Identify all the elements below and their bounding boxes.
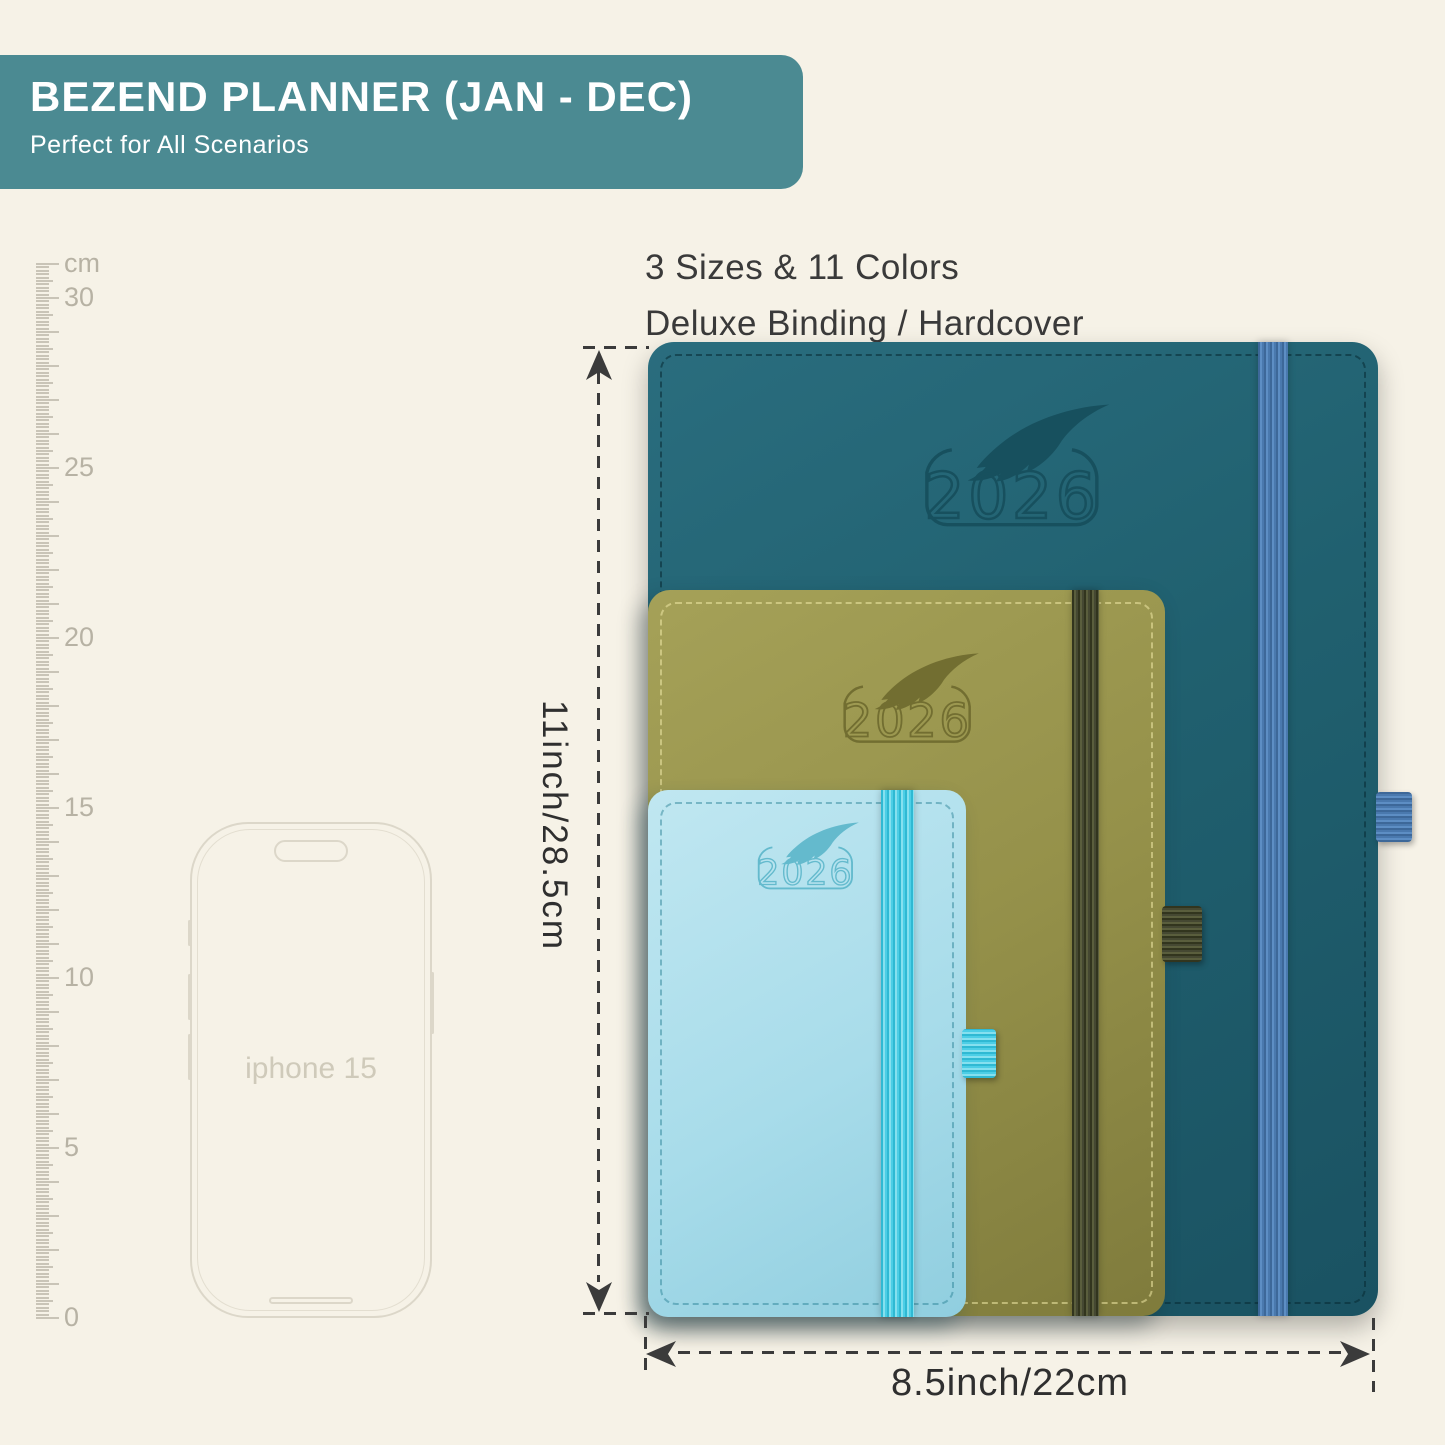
ruler-tick	[36, 664, 49, 666]
pen-loop	[962, 1029, 996, 1078]
ruler-tick	[36, 1093, 49, 1095]
ruler-tick	[36, 715, 49, 717]
ruler-tick	[36, 1246, 49, 1248]
ruler-tick	[36, 892, 53, 894]
ruler-tick	[36, 277, 49, 279]
ruler-tick	[36, 766, 49, 768]
year-text: 2026	[843, 695, 972, 749]
ruler-tick	[36, 742, 49, 744]
ruler-tick	[36, 617, 49, 619]
ruler-tick	[36, 895, 49, 897]
ruler-tick	[36, 807, 59, 809]
ruler-tick	[36, 413, 49, 415]
ruler-tick	[36, 719, 49, 721]
ruler-tick	[36, 1120, 49, 1122]
ruler-tick	[36, 991, 49, 993]
ruler-tick	[36, 351, 49, 353]
ruler-tick	[36, 1127, 49, 1129]
dimension-right-tick	[1372, 1318, 1375, 1392]
ruler-tick	[36, 504, 49, 506]
ruler-tick	[36, 1137, 49, 1139]
ruler-tick	[36, 970, 49, 972]
ruler-tick	[36, 729, 49, 731]
ruler-tick	[36, 657, 49, 659]
product-image: BEZEND PLANNER (JAN - DEC) Perfect for A…	[0, 0, 1445, 1445]
ruler-tick	[36, 324, 49, 326]
ruler-tick	[36, 545, 49, 547]
ruler-tick	[36, 593, 49, 595]
arrow-left-icon	[648, 1339, 674, 1369]
ruler-tick	[36, 1055, 49, 1057]
ruler-tick	[36, 851, 49, 853]
banner-title: BEZEND PLANNER (JAN - DEC)	[30, 73, 803, 121]
ruler-tick	[36, 334, 49, 336]
ruler-tick	[36, 273, 49, 275]
ruler-tick	[36, 399, 59, 401]
ruler-tick	[36, 637, 59, 639]
ruler-tick	[36, 1252, 49, 1254]
mute-switch	[188, 920, 191, 946]
ruler-tick	[36, 722, 53, 724]
ruler-tick	[36, 1239, 49, 1241]
ruler-tick	[36, 430, 49, 432]
ruler-tick	[36, 654, 53, 656]
ruler-tick	[36, 1232, 53, 1234]
ruler-tick	[36, 583, 49, 585]
ruler-tick	[36, 739, 59, 741]
height-dimension-label: 11inch/28.5cm	[534, 700, 574, 951]
year-emblem: 2026	[750, 820, 862, 897]
ruler-tick	[36, 929, 49, 931]
ruler-tick	[36, 821, 49, 823]
cm-ruler: 302520151050cm	[0, 0, 140, 1445]
banner-subtitle: Perfect for All Scenarios	[30, 131, 803, 160]
ruler-tick	[36, 885, 49, 887]
ruler-tick	[36, 494, 49, 496]
ruler-label: 20	[64, 622, 94, 653]
ruler-tick	[36, 1110, 49, 1112]
ruler-tick	[36, 681, 49, 683]
ruler-tick	[36, 1229, 49, 1231]
ruler-tick	[36, 1144, 49, 1146]
iphone-label: iphone 15	[192, 1052, 430, 1086]
ruler-tick	[36, 1045, 59, 1047]
ruler-tick	[36, 419, 49, 421]
ruler-tick	[36, 1198, 53, 1200]
ruler-tick	[36, 875, 59, 877]
ruler-tick	[36, 1300, 53, 1302]
ruler-tick	[36, 841, 59, 843]
volume-down-button	[188, 1034, 191, 1080]
ruler-tick	[36, 477, 49, 479]
ruler-tick	[36, 994, 53, 996]
ruler-tick	[36, 1059, 49, 1061]
ruler-tick	[36, 379, 49, 381]
feature-text: 3 Sizes & 11 Colors Deluxe Binding / Har…	[645, 240, 1084, 352]
ruler-tick	[36, 453, 49, 455]
ruler-tick	[36, 1290, 49, 1292]
dimension-top-cap	[583, 346, 649, 349]
ruler-tick	[36, 695, 49, 697]
ruler-tick	[36, 1004, 49, 1006]
ruler-tick	[36, 443, 49, 445]
ruler-tick	[36, 1171, 49, 1173]
dynamic-island	[274, 840, 348, 862]
ruler-tick	[36, 688, 53, 690]
ruler-tick	[36, 1184, 49, 1186]
ruler-tick	[36, 1222, 49, 1224]
ruler-tick	[36, 263, 59, 265]
ruler-tick	[36, 810, 49, 812]
ruler-tick	[36, 1174, 49, 1176]
ruler-tick	[36, 698, 49, 700]
ruler-tick	[36, 906, 49, 908]
ruler-tick	[36, 627, 49, 629]
ruler-tick	[36, 997, 49, 999]
ruler-tick	[36, 603, 59, 605]
ruler-tick	[36, 589, 49, 591]
ruler-tick	[36, 528, 49, 530]
ruler-tick	[36, 450, 53, 452]
ruler-tick	[36, 984, 49, 986]
ruler-tick	[36, 1280, 49, 1282]
ruler-tick	[36, 899, 49, 901]
ruler-tick	[36, 770, 49, 772]
ruler-tick	[36, 882, 49, 884]
ruler-tick	[36, 1106, 49, 1108]
ruler-tick	[36, 481, 49, 483]
ruler-tick	[36, 651, 49, 653]
ruler-tick	[36, 1072, 49, 1074]
ruler-tick	[36, 916, 49, 918]
ruler-tick	[36, 974, 49, 976]
ruler-tick	[36, 790, 53, 792]
ruler-tick	[36, 1310, 49, 1312]
ruler-tick	[36, 266, 49, 268]
ruler-tick	[36, 936, 49, 938]
ruler-tick	[36, 861, 49, 863]
ruler-tick	[36, 515, 49, 517]
ruler-tick	[36, 804, 49, 806]
ruler-tick	[36, 328, 49, 330]
ruler-tick	[36, 668, 49, 670]
ruler-tick	[36, 1164, 53, 1166]
ruler-tick	[36, 1048, 49, 1050]
ruler-tick	[36, 630, 49, 632]
ruler-tick	[36, 1018, 49, 1020]
ruler-tick	[36, 1297, 49, 1299]
ruler-tick	[36, 358, 49, 360]
ruler-tick	[36, 865, 49, 867]
ruler-tick	[36, 678, 49, 680]
ruler-tick	[36, 953, 49, 955]
ruler-tick	[36, 368, 49, 370]
pen-loop	[1376, 792, 1412, 842]
ruler-tick	[36, 382, 53, 384]
ruler-tick	[36, 878, 49, 880]
arrow-down-icon	[586, 1282, 612, 1312]
ruler-tick	[36, 1212, 49, 1214]
ruler-tick	[36, 460, 49, 462]
ruler-tick	[36, 1113, 59, 1115]
ruler-tick	[36, 705, 59, 707]
year-text: 2026	[757, 854, 853, 894]
ruler-tick	[36, 416, 53, 418]
ruler-tick	[36, 549, 49, 551]
elastic-band	[1258, 342, 1288, 1316]
ruler-tick	[36, 685, 49, 687]
ruler-tick	[36, 1266, 53, 1268]
ruler-tick	[36, 753, 49, 755]
ruler-tick	[36, 919, 49, 921]
ruler-tick	[36, 484, 53, 486]
ruler-tick	[36, 797, 49, 799]
ruler-tick	[36, 532, 49, 534]
ruler-tick	[36, 562, 49, 564]
ruler-tick	[36, 283, 49, 285]
ruler-tick	[36, 855, 49, 857]
ruler-tick	[36, 521, 49, 523]
ruler-tick	[36, 433, 59, 435]
ruler-tick	[36, 1181, 59, 1183]
ruler-tick	[36, 824, 53, 826]
ruler-tick	[36, 834, 49, 836]
ruler-tick	[36, 1218, 49, 1220]
ruler-tick	[36, 511, 49, 513]
ruler-tick	[36, 409, 49, 411]
ruler-tick	[36, 1065, 49, 1067]
ruler-tick	[36, 756, 53, 758]
ruler-tick	[36, 773, 59, 775]
ruler-tick	[36, 1191, 49, 1193]
arrow-right-icon	[1342, 1339, 1368, 1369]
ruler-tick	[36, 572, 49, 574]
ruler-tick	[36, 1263, 49, 1265]
ruler-tick	[36, 889, 49, 891]
ruler-tick	[36, 844, 49, 846]
ruler-tick	[36, 1147, 59, 1149]
ruler-tick	[36, 348, 53, 350]
ruler-tick	[36, 362, 49, 364]
ruler-tick	[36, 375, 49, 377]
ruler-tick	[36, 702, 49, 704]
ruler-tick	[36, 294, 49, 296]
ruler-tick	[36, 776, 49, 778]
ruler-tick	[36, 392, 49, 394]
planner-small: 2026	[648, 790, 966, 1317]
ruler-tick	[36, 270, 49, 272]
ruler-tick	[36, 1178, 49, 1180]
ruler-tick	[36, 1283, 59, 1285]
ruler-tick	[36, 518, 53, 520]
ruler-tick	[36, 338, 49, 340]
ruler-tick	[36, 1069, 49, 1071]
ruler-tick	[36, 1011, 59, 1013]
ruler-tick	[36, 290, 49, 292]
ruler-tick	[36, 960, 53, 962]
ruler-tick	[36, 872, 49, 874]
ruler-tick	[36, 1140, 49, 1142]
ruler-tick	[36, 1035, 49, 1037]
ruler-tick	[36, 1031, 49, 1033]
home-indicator	[269, 1297, 353, 1304]
ruler-tick	[36, 1130, 53, 1132]
ruler-tick	[36, 827, 49, 829]
ruler-label: 0	[64, 1302, 79, 1333]
ruler-tick	[36, 708, 49, 710]
ruler-tick	[36, 1079, 59, 1081]
ruler-tick	[36, 1157, 49, 1159]
ruler-tick	[36, 1038, 49, 1040]
ruler-tick	[36, 1314, 49, 1316]
ruler-tick	[36, 317, 49, 319]
ruler-label: 15	[64, 792, 94, 823]
ruler-tick	[36, 569, 59, 571]
ruler-tick	[36, 1008, 49, 1010]
ruler-tick	[36, 389, 49, 391]
ruler-tick	[36, 1215, 59, 1217]
ruler-label: 5	[64, 1132, 79, 1163]
ruler-tick	[36, 501, 59, 503]
ruler-tick	[36, 1025, 49, 1027]
pen-loop	[1162, 906, 1202, 962]
width-dimension-label: 8.5inch/22cm	[840, 1362, 1180, 1405]
ruler-tick	[36, 868, 49, 870]
ruler-tick	[36, 1001, 49, 1003]
ruler-tick	[36, 902, 49, 904]
ruler-tick	[36, 1188, 49, 1190]
ruler-tick	[36, 535, 59, 537]
ruler-tick	[36, 759, 49, 761]
ruler-tick	[36, 1133, 49, 1135]
ruler-tick	[36, 736, 49, 738]
ruler-tick	[36, 426, 49, 428]
ruler-tick	[36, 1293, 49, 1295]
ruler-tick	[36, 1303, 49, 1305]
ruler-tick	[36, 314, 53, 316]
ruler-tick	[36, 1256, 49, 1258]
ruler-tick	[36, 355, 49, 357]
ruler-tick	[36, 1201, 49, 1203]
iphone-outline: iphone 15	[190, 822, 432, 1318]
ruler-tick	[36, 525, 49, 527]
ruler-tick	[36, 946, 49, 948]
ruler-tick	[36, 280, 53, 282]
ruler-tick	[36, 498, 49, 500]
ruler-tick	[36, 1242, 49, 1244]
ruler-tick	[36, 644, 49, 646]
ruler-tick	[36, 848, 49, 850]
ruler-tick	[36, 586, 53, 588]
ruler-tick	[36, 321, 49, 323]
elastic-band	[881, 790, 914, 1317]
ruler-tick	[36, 980, 49, 982]
ruler-tick	[36, 467, 59, 469]
ruler-tick	[36, 596, 49, 598]
ruler-tick	[36, 838, 49, 840]
ruler-tick	[36, 933, 49, 935]
ruler-tick	[36, 1028, 53, 1030]
ruler-tick	[36, 1082, 49, 1084]
arrow-up-icon	[586, 350, 612, 380]
ruler-tick	[36, 613, 49, 615]
ruler-tick	[36, 1195, 49, 1197]
ruler-tick	[36, 661, 49, 663]
ruler-tick	[36, 814, 49, 816]
ruler-tick	[36, 1161, 49, 1163]
ruler-tick	[36, 780, 49, 782]
ruler-tick	[36, 1076, 49, 1078]
ruler-tick	[36, 749, 49, 751]
volume-up-button	[188, 974, 191, 1020]
ruler-label: 30	[64, 282, 94, 313]
ruler-tick	[36, 634, 49, 636]
ruler-tick	[36, 943, 59, 945]
feature-line-sizes: 3 Sizes & 11 Colors	[645, 240, 1084, 296]
ruler-tick	[36, 1042, 49, 1044]
ruler-tick	[36, 1286, 49, 1288]
ruler-tick	[36, 963, 49, 965]
ruler-tick	[36, 623, 49, 625]
ruler-tick	[36, 1123, 49, 1125]
ruler-tick	[36, 712, 49, 714]
ruler-tick	[36, 345, 49, 347]
ruler-tick	[36, 1269, 49, 1271]
dimension-bottom-cap	[583, 1312, 649, 1315]
ruler-tick	[36, 1116, 49, 1118]
ruler-tick	[36, 967, 49, 969]
ruler-tick	[36, 987, 49, 989]
ruler-tick	[36, 457, 49, 459]
ruler-tick	[36, 606, 49, 608]
ruler-tick	[36, 940, 49, 942]
ruler-tick	[36, 566, 49, 568]
ruler-tick	[36, 783, 49, 785]
ruler-tick	[36, 674, 49, 676]
elastic-band	[1072, 590, 1099, 1316]
ruler-tick	[36, 763, 49, 765]
dimension-height-line	[597, 372, 600, 1282]
ruler-tick	[36, 725, 49, 727]
ruler-tick	[36, 555, 49, 557]
ruler-tick	[36, 396, 49, 398]
ruler-tick	[36, 1099, 49, 1101]
ruler-tick	[36, 311, 49, 313]
ruler-tick	[36, 341, 49, 343]
ruler-tick	[36, 800, 49, 802]
ruler-tick	[36, 304, 49, 306]
ruler-tick	[36, 620, 53, 622]
ruler-tick	[36, 1307, 49, 1309]
ruler-tick	[36, 559, 49, 561]
ruler-tick	[36, 1259, 49, 1261]
ruler-tick	[36, 406, 49, 408]
ruler-tick	[36, 858, 53, 860]
ruler-tick	[36, 372, 49, 374]
year-text: 2026	[924, 459, 1099, 533]
ruler-tick	[36, 576, 49, 578]
ruler-tick	[36, 817, 49, 819]
ruler-tick	[36, 491, 49, 493]
ruler-tick	[36, 1150, 49, 1152]
ruler-tick	[36, 1249, 59, 1251]
ruler-tick	[36, 1089, 49, 1091]
ruler-tick	[36, 912, 49, 914]
ruler-tick	[36, 1225, 49, 1227]
power-button	[431, 972, 434, 1034]
ruler-tick	[36, 307, 49, 309]
ruler-tick	[36, 1021, 49, 1023]
